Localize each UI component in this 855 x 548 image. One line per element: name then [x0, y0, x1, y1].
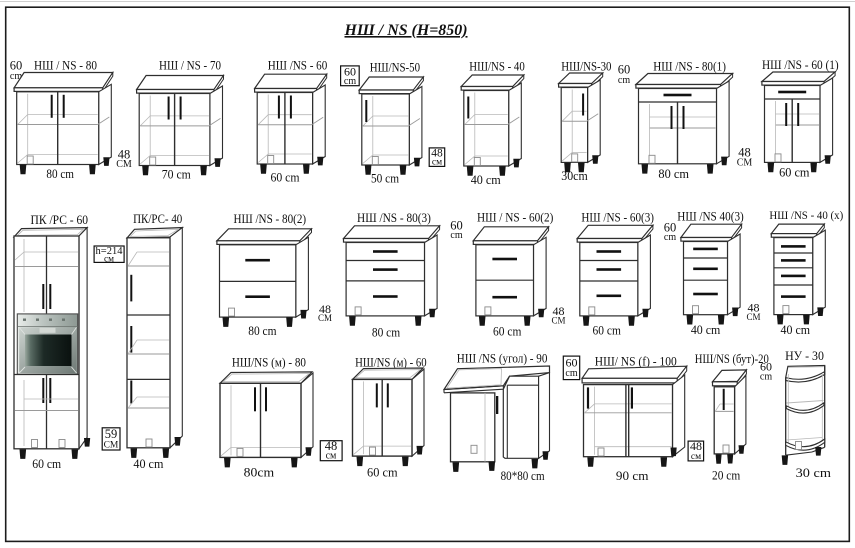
svg-text:cm: cm: [618, 75, 630, 86]
svg-text:НШ /NS - 60 (1): НШ /NS - 60 (1): [762, 58, 839, 72]
svg-text:НШ/NS-30: НШ/NS-30: [561, 60, 611, 74]
svg-text:80*80 cm: 80*80 cm: [501, 469, 545, 483]
svg-text:cm: cm: [760, 372, 772, 383]
svg-text:НУ - 30: НУ - 30: [785, 349, 824, 363]
svg-text:80 cm: 80 cm: [372, 325, 401, 339]
svg-text:НШ /NS - 40 (х): НШ /NS - 40 (х): [769, 208, 843, 222]
svg-text:cm: cm: [565, 368, 577, 379]
svg-text:60 cm: 60 cm: [493, 325, 522, 339]
svg-text:60 cm: 60 cm: [271, 171, 300, 185]
svg-text:НШ / NS - 80: НШ / NS - 80: [34, 59, 97, 73]
svg-text:60 cm: 60 cm: [779, 165, 810, 179]
svg-text:СМ: СМ: [104, 441, 119, 451]
svg-text:СМ: СМ: [116, 159, 132, 170]
svg-text:НШ /NS - 60(3): НШ /NS - 60(3): [581, 211, 654, 225]
svg-text:НШ/NS - 40: НШ/NS - 40: [469, 60, 525, 74]
svg-text:НШ /NS - 60: НШ /NS - 60: [268, 59, 328, 73]
svg-text:80 cm: 80 cm: [46, 167, 74, 181]
svg-text:НШ/NS-50: НШ/NS-50: [370, 61, 420, 75]
svg-text:40 cm: 40 cm: [691, 323, 721, 337]
svg-text:40 cm: 40 cm: [133, 457, 164, 471]
svg-text:60 cm: 60 cm: [593, 324, 622, 338]
svg-text:60 cm: 60 cm: [32, 457, 61, 471]
svg-text:НШ / NS - 70: НШ / NS - 70: [159, 59, 221, 73]
svg-text:30 cm: 30 cm: [796, 466, 832, 480]
svg-text:НШ / NS - 60(2): НШ / NS - 60(2): [477, 211, 553, 225]
svg-text:СМ: СМ: [746, 312, 760, 322]
svg-text:40 cm: 40 cm: [471, 173, 502, 187]
svg-text:30cm: 30cm: [561, 169, 588, 183]
svg-text:НШ /NS 40(3): НШ /NS 40(3): [677, 210, 744, 224]
svg-text:см: см: [326, 451, 337, 462]
svg-text:80 cm: 80 cm: [658, 167, 689, 181]
svg-text:80cm: 80cm: [244, 466, 275, 480]
svg-text:см: см: [691, 452, 701, 462]
svg-text:59: 59: [105, 427, 118, 441]
svg-text:cm: cm: [664, 232, 676, 243]
svg-text:НШ/NS (бут)-20: НШ/NS (бут)-20: [695, 352, 769, 366]
svg-text:cm: cm: [450, 230, 462, 241]
svg-text:90 cm: 90 cm: [616, 469, 649, 483]
svg-text:50 cm: 50 cm: [371, 172, 399, 186]
svg-text:ПК/РС- 40: ПК/РС- 40: [133, 212, 182, 226]
svg-text:70 cm: 70 cm: [162, 168, 191, 182]
svg-text:СМ: СМ: [737, 158, 753, 169]
svg-text:48: 48: [690, 439, 702, 453]
svg-text:40 cm: 40 cm: [781, 323, 811, 337]
svg-text:80 cm: 80 cm: [248, 324, 277, 338]
svg-text:НШ /NS - 80(1): НШ /NS - 80(1): [653, 60, 726, 74]
svg-text:ПК /РС - 60: ПК /РС - 60: [31, 213, 89, 227]
svg-text:см: см: [432, 158, 442, 168]
svg-text:НШ /NS - 80(2): НШ /NS - 80(2): [233, 212, 306, 226]
svg-text:СМ: СМ: [551, 316, 565, 326]
svg-text:СМ: СМ: [318, 313, 332, 323]
svg-text:НШ / NS (Н=850): НШ / NS (Н=850): [344, 22, 468, 39]
svg-text:см: см: [104, 254, 114, 264]
svg-text:НШ /NS (угол) - 90: НШ /NS (угол) - 90: [457, 352, 548, 366]
svg-text:cm: cm: [344, 76, 356, 87]
svg-text:60 cm: 60 cm: [367, 466, 398, 480]
svg-text:НШ /NS - 80(3): НШ /NS - 80(3): [357, 211, 431, 225]
svg-text:20 cm: 20 cm: [712, 468, 741, 482]
svg-text:НШ/NS (м) - 80: НШ/NS (м) - 80: [232, 356, 306, 370]
